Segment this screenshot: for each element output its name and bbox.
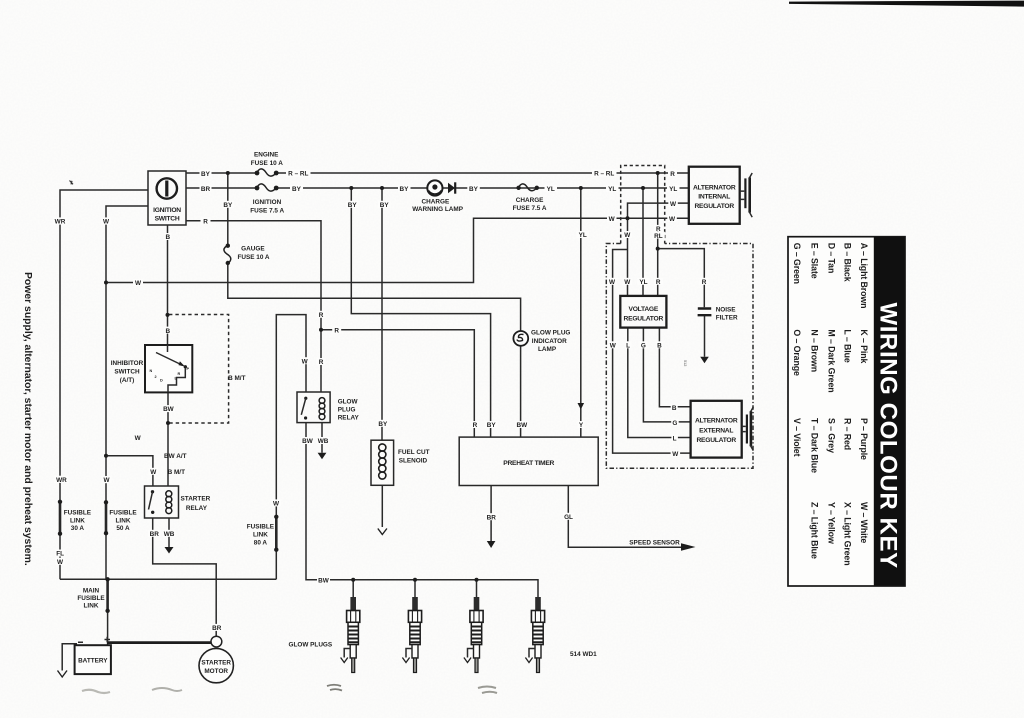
svg-text:P – Purple: P – Purple — [859, 418, 869, 460]
svg-text:MOTOR: MOTOR — [204, 668, 228, 675]
svg-text:B: B — [165, 328, 170, 335]
svg-text:30 A: 30 A — [71, 525, 85, 532]
svg-text:BR: BR — [201, 186, 211, 193]
svg-text:R – RL: R – RL — [594, 171, 614, 178]
svg-text:W: W — [135, 435, 142, 442]
svg-text:FUSE 10 A: FUSE 10 A — [251, 160, 283, 167]
svg-text:VOLTAGE: VOLTAGE — [629, 306, 659, 313]
svg-text:B – Black: B – Black — [842, 243, 852, 282]
svg-text:BW: BW — [318, 577, 330, 584]
svg-text:YL: YL — [579, 232, 587, 239]
svg-text:W: W — [150, 469, 157, 476]
svg-text:W: W — [610, 342, 617, 349]
svg-text:FL: FL — [56, 551, 64, 558]
svg-text:R: R — [334, 328, 339, 335]
svg-text:LINK: LINK — [253, 532, 268, 539]
svg-text:ALTERNATOR: ALTERNATOR — [693, 185, 736, 192]
svg-text:WIRING COLOUR KEY: WIRING COLOUR KEY — [875, 303, 902, 569]
svg-text:IGNITION: IGNITION — [153, 207, 181, 214]
svg-text:512: 512 — [683, 360, 687, 366]
svg-text:EXTERNAL: EXTERNAL — [699, 427, 733, 434]
svg-text:BR: BR — [150, 531, 160, 538]
svg-text:GLOW PLUG: GLOW PLUG — [531, 329, 570, 336]
svg-text:B M/T: B M/T — [168, 469, 185, 476]
svg-text:WB: WB — [318, 438, 329, 445]
svg-text:E – Slate: E – Slate — [810, 243, 820, 279]
svg-text:V – Violet: V – Violet — [792, 418, 802, 457]
svg-text:INDICATOR: INDICATOR — [532, 338, 567, 345]
svg-text:W: W — [624, 232, 631, 239]
svg-text:YL: YL — [547, 186, 555, 193]
svg-text:S – Grey: S – Grey — [827, 418, 837, 453]
svg-text:W: W — [624, 279, 631, 286]
svg-text:SPEED SENSOR: SPEED SENSOR — [629, 539, 680, 546]
svg-text:IGNITION: IGNITION — [253, 199, 282, 206]
svg-text:FUSE 7.5 A: FUSE 7.5 A — [513, 205, 547, 212]
svg-text:SWITCH: SWITCH — [155, 216, 180, 223]
svg-text:BY: BY — [487, 422, 497, 429]
svg-text:MAIN: MAIN — [83, 587, 100, 594]
svg-text:W – White: W – White — [859, 502, 869, 543]
svg-text:(A/T): (A/T) — [120, 377, 135, 384]
svg-text:BY: BY — [348, 202, 358, 209]
svg-text:ALTERNATOR: ALTERNATOR — [695, 418, 738, 425]
svg-text:WR: WR — [56, 477, 67, 484]
svg-text:BY: BY — [469, 186, 479, 193]
svg-text:CHARGE: CHARGE — [422, 199, 450, 206]
svg-text:PLUG: PLUG — [338, 406, 356, 413]
svg-text:N: N — [150, 369, 153, 373]
svg-text:FILTER: FILTER — [716, 314, 738, 321]
svg-text:R – Red: R – Red — [842, 418, 852, 450]
svg-text:BR: BR — [212, 625, 222, 632]
svg-text:R – RL: R – RL — [288, 171, 308, 178]
svg-text:L – Blue: L – Blue — [842, 329, 852, 362]
svg-text:A – Light Brown: A – Light Brown — [859, 243, 869, 309]
svg-text:GLOW PLUGS: GLOW PLUGS — [289, 641, 333, 648]
svg-text:BY: BY — [292, 186, 302, 193]
svg-text:W: W — [273, 501, 280, 508]
svg-text:G: G — [641, 342, 646, 349]
svg-text:R: R — [670, 171, 675, 178]
svg-text:REGULATOR: REGULATOR — [696, 437, 736, 444]
svg-text:REGULATOR: REGULATOR — [694, 203, 734, 210]
svg-text:Z – Light Blue: Z – Light Blue — [810, 502, 820, 559]
svg-text:BY: BY — [201, 171, 211, 178]
svg-text:R: R — [473, 422, 478, 429]
svg-text:BY: BY — [378, 421, 388, 428]
svg-text:BW: BW — [302, 438, 314, 445]
svg-text:YL: YL — [669, 186, 677, 193]
svg-text:50 A: 50 A — [116, 525, 130, 532]
svg-text:W: W — [135, 280, 142, 287]
svg-text:LINK: LINK — [84, 602, 99, 609]
svg-text:Y – Yellow: Y – Yellow — [827, 502, 837, 544]
svg-text:Power supply, alternator, star: Power supply, alternator, starter motor … — [22, 272, 33, 566]
svg-text:GAUGE: GAUGE — [241, 245, 265, 252]
svg-text:N – Brown: N – Brown — [810, 329, 820, 372]
svg-text:W: W — [609, 279, 616, 286]
svg-text:L: L — [626, 342, 630, 349]
svg-text:WARNING LAMP: WARNING LAMP — [412, 206, 464, 213]
svg-text:L: L — [673, 436, 677, 443]
svg-text:D: D — [160, 379, 163, 383]
svg-text:BW: BW — [516, 422, 528, 429]
svg-text:WB: WB — [164, 531, 175, 538]
svg-text:R: R — [203, 218, 208, 225]
svg-text:2: 2 — [155, 375, 157, 379]
svg-text:514 WD1: 514 WD1 — [570, 651, 597, 658]
svg-text:YL: YL — [639, 279, 647, 286]
svg-text:WR: WR — [55, 219, 66, 226]
svg-text:BY: BY — [223, 202, 233, 209]
svg-text:BR: BR — [487, 514, 497, 521]
svg-text:R: R — [656, 279, 661, 286]
svg-text:FUEL CUT: FUEL CUT — [398, 449, 430, 456]
svg-text:BY: BY — [400, 186, 410, 193]
svg-text:FUSIBLE: FUSIBLE — [64, 510, 92, 517]
svg-text:LINK: LINK — [70, 517, 85, 524]
svg-text:BATTERY: BATTERY — [78, 657, 108, 664]
svg-text:W: W — [103, 219, 110, 226]
svg-text:YL: YL — [608, 186, 616, 193]
svg-text:PREHEAT TIMER: PREHEAT TIMER — [503, 460, 554, 467]
svg-text:FUSE 10 A: FUSE 10 A — [237, 254, 269, 261]
svg-text:ENGINE: ENGINE — [254, 152, 279, 159]
svg-text:GL: GL — [564, 514, 573, 521]
svg-text:80 A: 80 A — [254, 539, 268, 546]
svg-text:G – Green: G – Green — [792, 243, 802, 284]
svg-text:K – Pink: K – Pink — [859, 329, 869, 363]
svg-text:RL: RL — [654, 233, 663, 240]
svg-text:Y: Y — [579, 422, 584, 429]
svg-text:W: W — [669, 216, 676, 223]
svg-text:CHARGE: CHARGE — [516, 197, 544, 204]
svg-text:R: R — [319, 312, 324, 319]
svg-text:W: W — [103, 477, 110, 484]
svg-text:FUSE 7.5 A: FUSE 7.5 A — [250, 207, 284, 214]
svg-text:BW: BW — [163, 406, 175, 413]
svg-text:W: W — [302, 358, 309, 365]
svg-text:RELAY: RELAY — [186, 505, 208, 512]
svg-text:REGULATOR: REGULATOR — [624, 315, 664, 322]
svg-text:LINK: LINK — [116, 517, 131, 524]
svg-text:STARTER: STARTER — [201, 659, 231, 666]
svg-text:R: R — [702, 279, 707, 286]
svg-text:BY: BY — [380, 202, 390, 209]
svg-text:GLOW: GLOW — [338, 398, 359, 405]
svg-text:B: B — [165, 234, 170, 241]
svg-text:O – Orange: O – Orange — [792, 329, 802, 376]
svg-text:FUSIBLE: FUSIBLE — [109, 510, 137, 517]
svg-text:SLENOID: SLENOID — [399, 457, 428, 464]
svg-text:W: W — [672, 451, 679, 458]
svg-text:T – Dark Blue: T – Dark Blue — [810, 418, 820, 473]
svg-text:BW A/T: BW A/T — [164, 453, 187, 460]
svg-text:B M/T: B M/T — [228, 375, 245, 382]
svg-text:W: W — [609, 216, 616, 223]
svg-text:X – Light Green: X – Light Green — [842, 502, 852, 566]
svg-text:M – Dark Green: M – Dark Green — [827, 329, 837, 392]
svg-text:B: B — [672, 405, 677, 412]
svg-text:G: G — [672, 420, 677, 427]
svg-text:W: W — [57, 559, 64, 566]
svg-text:SWITCH: SWITCH — [114, 368, 140, 375]
svg-text:RELAY: RELAY — [338, 415, 360, 422]
svg-text:NOISE: NOISE — [716, 307, 737, 314]
svg-text:FUSIBLE: FUSIBLE — [247, 524, 275, 531]
svg-text:W: W — [670, 201, 677, 208]
svg-text:INHIBITOR: INHIBITOR — [111, 360, 144, 367]
svg-text:STARTER: STARTER — [181, 495, 211, 502]
svg-text:D – Tan: D – Tan — [827, 243, 837, 273]
svg-text:FUSIBLE: FUSIBLE — [77, 595, 105, 602]
svg-text:INTERNAL: INTERNAL — [698, 194, 730, 201]
svg-text:B: B — [657, 342, 662, 349]
svg-text:LAMP: LAMP — [538, 346, 557, 353]
svg-text:R: R — [319, 359, 324, 366]
svg-text:R: R — [178, 372, 181, 376]
